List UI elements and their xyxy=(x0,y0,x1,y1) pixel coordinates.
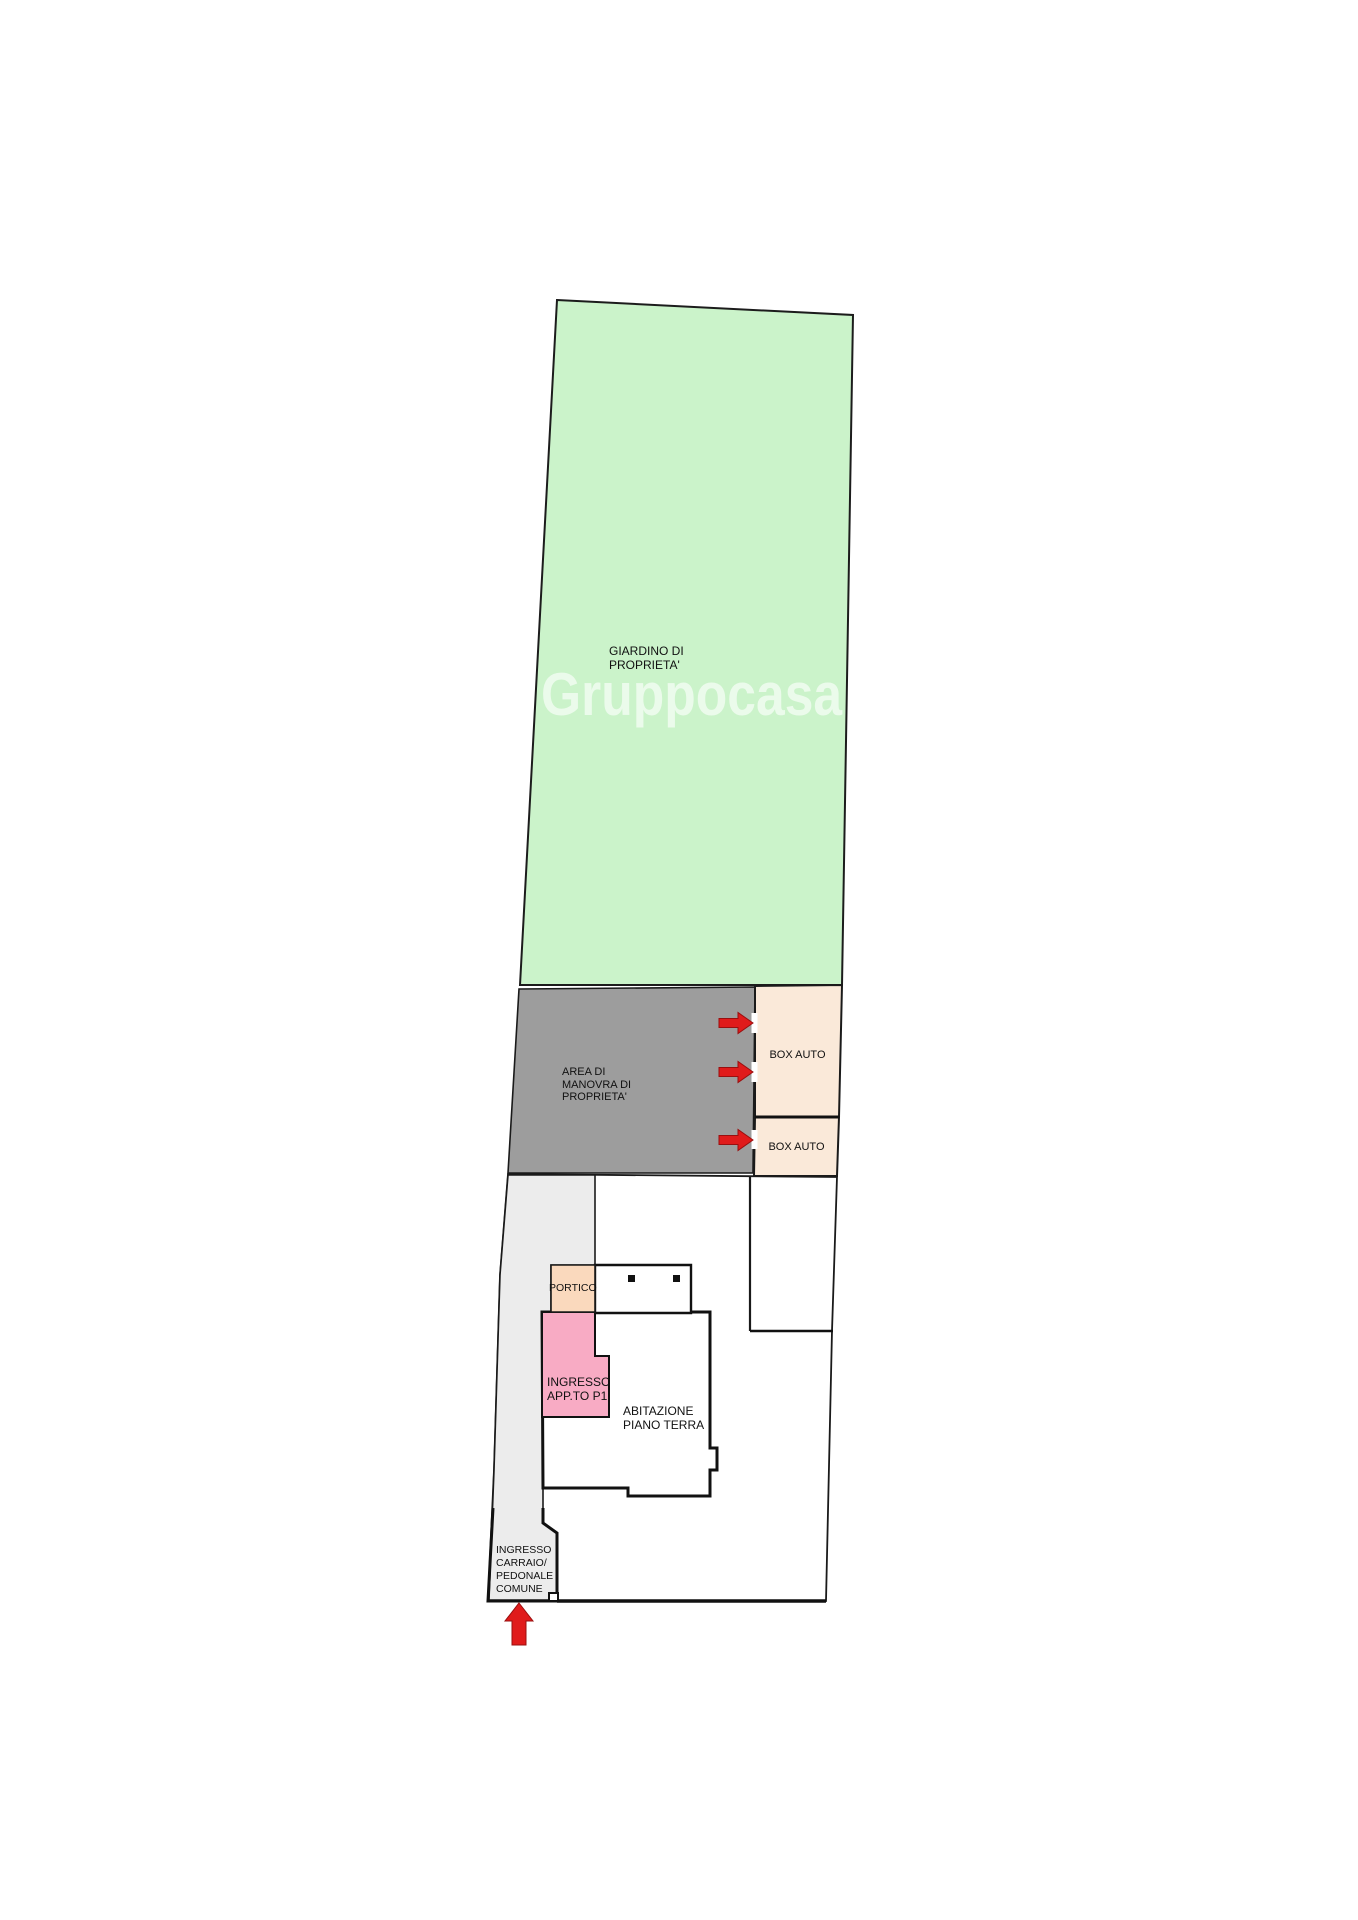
garden-label: GIARDINO DI PROPRIETA' xyxy=(609,644,684,672)
maneuver-area xyxy=(508,987,755,1173)
apartment-entrance-label: INGRESSO APP.TO P1 xyxy=(547,1375,610,1403)
ground-floor-home-label: ABITAZIONE PIANO TERRA xyxy=(623,1404,704,1432)
box-auto-1-label: BOX AUTO xyxy=(756,1049,839,1061)
street-entrance-arrow-icon xyxy=(505,1603,533,1645)
pillar-marker-1 xyxy=(628,1275,635,1282)
maneuver-area-label: AREA DI MANOVRA DI PROPRIETA' xyxy=(562,1066,631,1104)
portico-roof-area xyxy=(595,1265,691,1313)
floor-plan-svg xyxy=(0,0,1358,1920)
pillar-marker-2 xyxy=(673,1275,680,1282)
box-auto-2-label: BOX AUTO xyxy=(755,1141,838,1153)
floor-plan-page: GIARDINO DI PROPRIETA' AREA DI MANOVRA D… xyxy=(0,0,1358,1920)
portico-label: PORTICO xyxy=(549,1282,597,1294)
common-entrance-label: INGRESSO CARRAIO/ PEDONALE COMUNE xyxy=(496,1544,553,1596)
garden-area xyxy=(520,300,853,985)
